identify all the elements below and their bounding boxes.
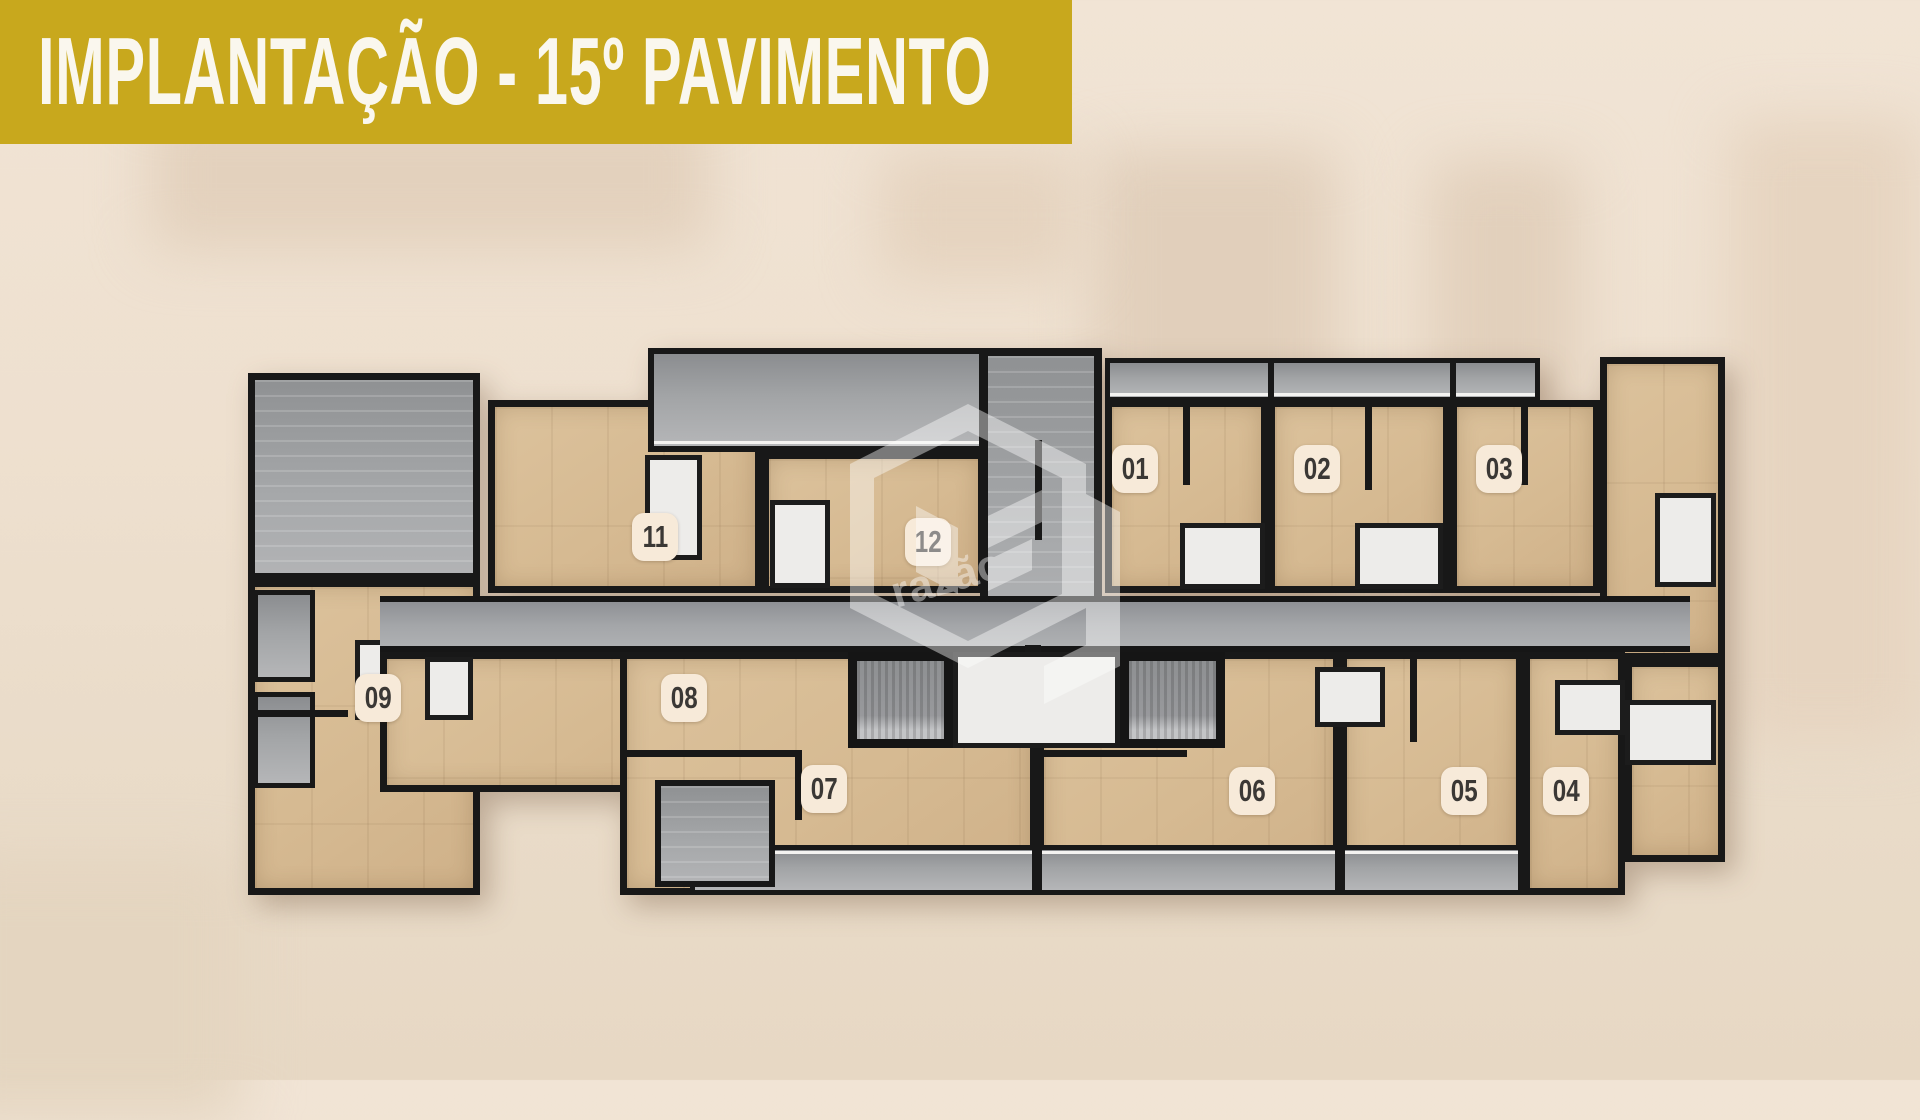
watermark-logo: razão	[828, 398, 1132, 722]
balcony-unit-06	[1037, 845, 1340, 895]
partition-wall	[248, 710, 348, 717]
backdrop-shape	[0, 860, 240, 1120]
balcony-unit-09-lower	[253, 692, 315, 788]
bathroom-unit-01	[1180, 523, 1265, 589]
balcony-unit-09-upper	[253, 590, 315, 682]
page: { "banner": { "title": "IMPLANTAÇÃO - 15…	[0, 0, 1920, 1080]
exterior-steps	[655, 780, 775, 887]
partition-wall	[1521, 400, 1528, 485]
bathroom-unit-02	[1355, 523, 1443, 589]
unit-badge-06: 06	[1229, 767, 1275, 815]
title-banner: IMPLANTAÇÃO - 15º PAVIMENTO	[0, 0, 1072, 144]
cube-outline-icon	[850, 404, 1086, 668]
partition-wall	[1183, 400, 1190, 485]
stair-ramp-block	[248, 373, 480, 580]
partition-wall	[620, 750, 800, 757]
bathroom-unit-04	[1555, 680, 1625, 735]
unit-badge-05: 05	[1441, 767, 1487, 815]
elevator-right	[1120, 652, 1225, 748]
unit-badge-08: 08	[661, 674, 707, 722]
backdrop-shape	[880, 150, 1080, 280]
unit-badge-02: 02	[1294, 445, 1340, 493]
page-title: IMPLANTAÇÃO - 15º PAVIMENTO	[38, 17, 991, 127]
unit-badge-09: 09	[355, 674, 401, 722]
unit-badge-11: 11	[632, 513, 678, 561]
unit-badge-03: 03	[1476, 445, 1522, 493]
partition-wall	[1037, 750, 1187, 757]
balcony-divider-wall	[1268, 358, 1274, 402]
balcony-divider-wall	[1450, 358, 1456, 402]
partition-wall	[1365, 400, 1372, 490]
backdrop-shape	[1730, 120, 1920, 740]
partition-wall	[1410, 652, 1417, 742]
balcony-units-01-02-03	[1105, 358, 1540, 402]
bathroom-unit-05	[1315, 667, 1385, 727]
unit-badge-04: 04	[1543, 767, 1589, 815]
balcony-unit-05	[1340, 845, 1523, 895]
bathroom-unit-08	[425, 657, 473, 720]
bathroom-right-wing-bottom	[1625, 700, 1716, 765]
bathroom-unit-12	[770, 500, 830, 588]
unit-badge-07: 07	[801, 765, 847, 813]
bathroom-right-wing	[1655, 493, 1716, 587]
